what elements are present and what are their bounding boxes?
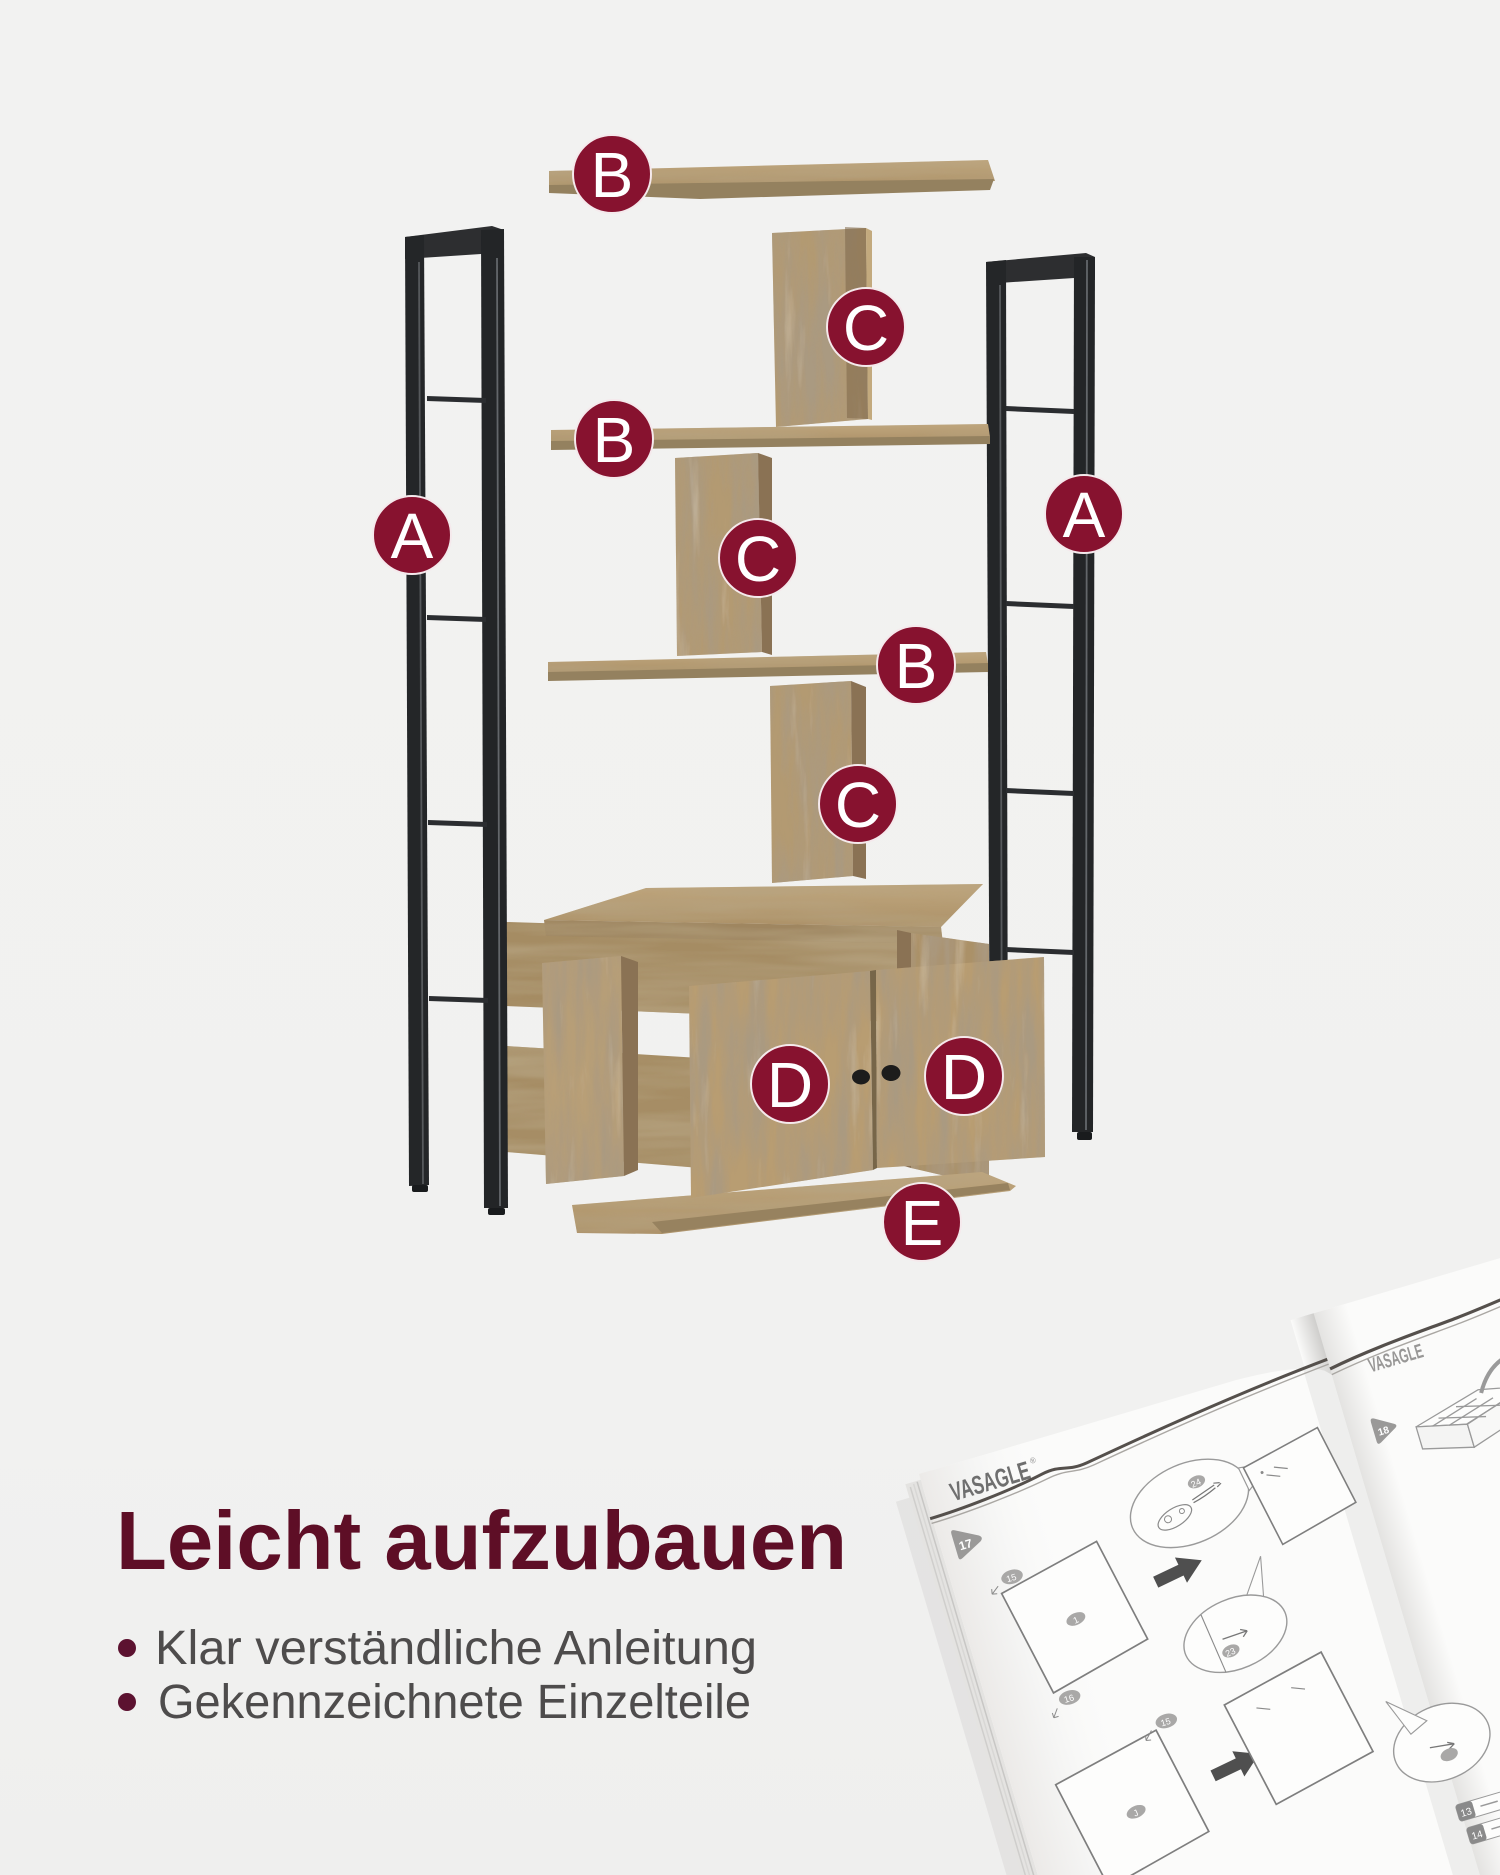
- svg-text:A: A: [391, 500, 434, 572]
- svg-text:C: C: [835, 769, 881, 841]
- svg-text:Leicht aufzubauen: Leicht aufzubauen: [116, 1494, 847, 1587]
- svg-text:Klar verständliche Anleitung: Klar verständliche Anleitung: [155, 1622, 757, 1675]
- svg-text:A: A: [1063, 479, 1106, 551]
- svg-text:B: B: [895, 630, 938, 702]
- svg-text:B: B: [591, 139, 634, 211]
- svg-text:C: C: [735, 523, 781, 595]
- svg-text:B: B: [593, 404, 636, 476]
- svg-text:D: D: [767, 1049, 813, 1121]
- svg-text:C: C: [843, 292, 889, 364]
- svg-text:Gekennzeichnete Einzelteile: Gekennzeichnete Einzelteile: [158, 1676, 751, 1729]
- svg-text:E: E: [901, 1187, 944, 1259]
- svg-text:D: D: [941, 1041, 987, 1113]
